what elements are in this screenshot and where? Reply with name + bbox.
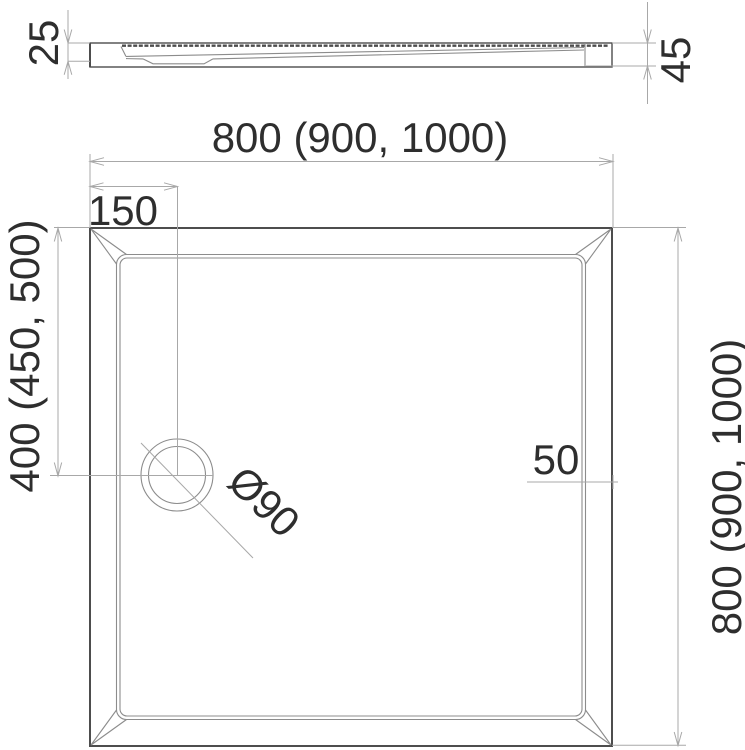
tray-rim-inner-edge [117,255,586,720]
dim-rim-width: 50 [527,436,618,489]
plan-view [50,187,612,746]
dim-right-label: 800 (900, 1000) [703,339,745,636]
dim-drain-offset-label: 150 [88,187,158,234]
dim-top-width-label: 800 (900, 1000) [212,114,509,161]
corner-seams [91,229,611,745]
dim-profile-rim-height: 25 [20,10,90,79]
profile-drain-bump [143,59,213,64]
tray-outer-edge [90,228,612,746]
drain-diameter-label: Ø90 [219,457,309,546]
drain-diameter-callout: Ø90 [141,443,309,558]
tray-floor-edge [120,258,582,716]
dim-drain-offset-y: 400 (450, 500) [1,219,90,492]
profile-rim-inner-left [121,47,126,57]
dim-profile-rim-label: 25 [20,20,67,67]
dim-rim-label: 50 [533,436,580,483]
dim-profile-height-label: 45 [652,37,699,84]
dim-plan-width: 800 (900, 1000) [90,114,613,228]
profile-view [90,43,612,67]
dim-plan-height: 800 (900, 1000) [612,228,745,746]
shower-tray-dimension-drawing: 25 45 800 (900, 1000) [0,0,745,750]
technical-drawing-page: 25 45 800 (900, 1000) [0,0,745,750]
dim-drain-offset-x: 150 [88,183,178,234]
dim-left-label: 400 (450, 500) [1,219,48,492]
dim-profile-total-height: 45 [586,2,699,104]
